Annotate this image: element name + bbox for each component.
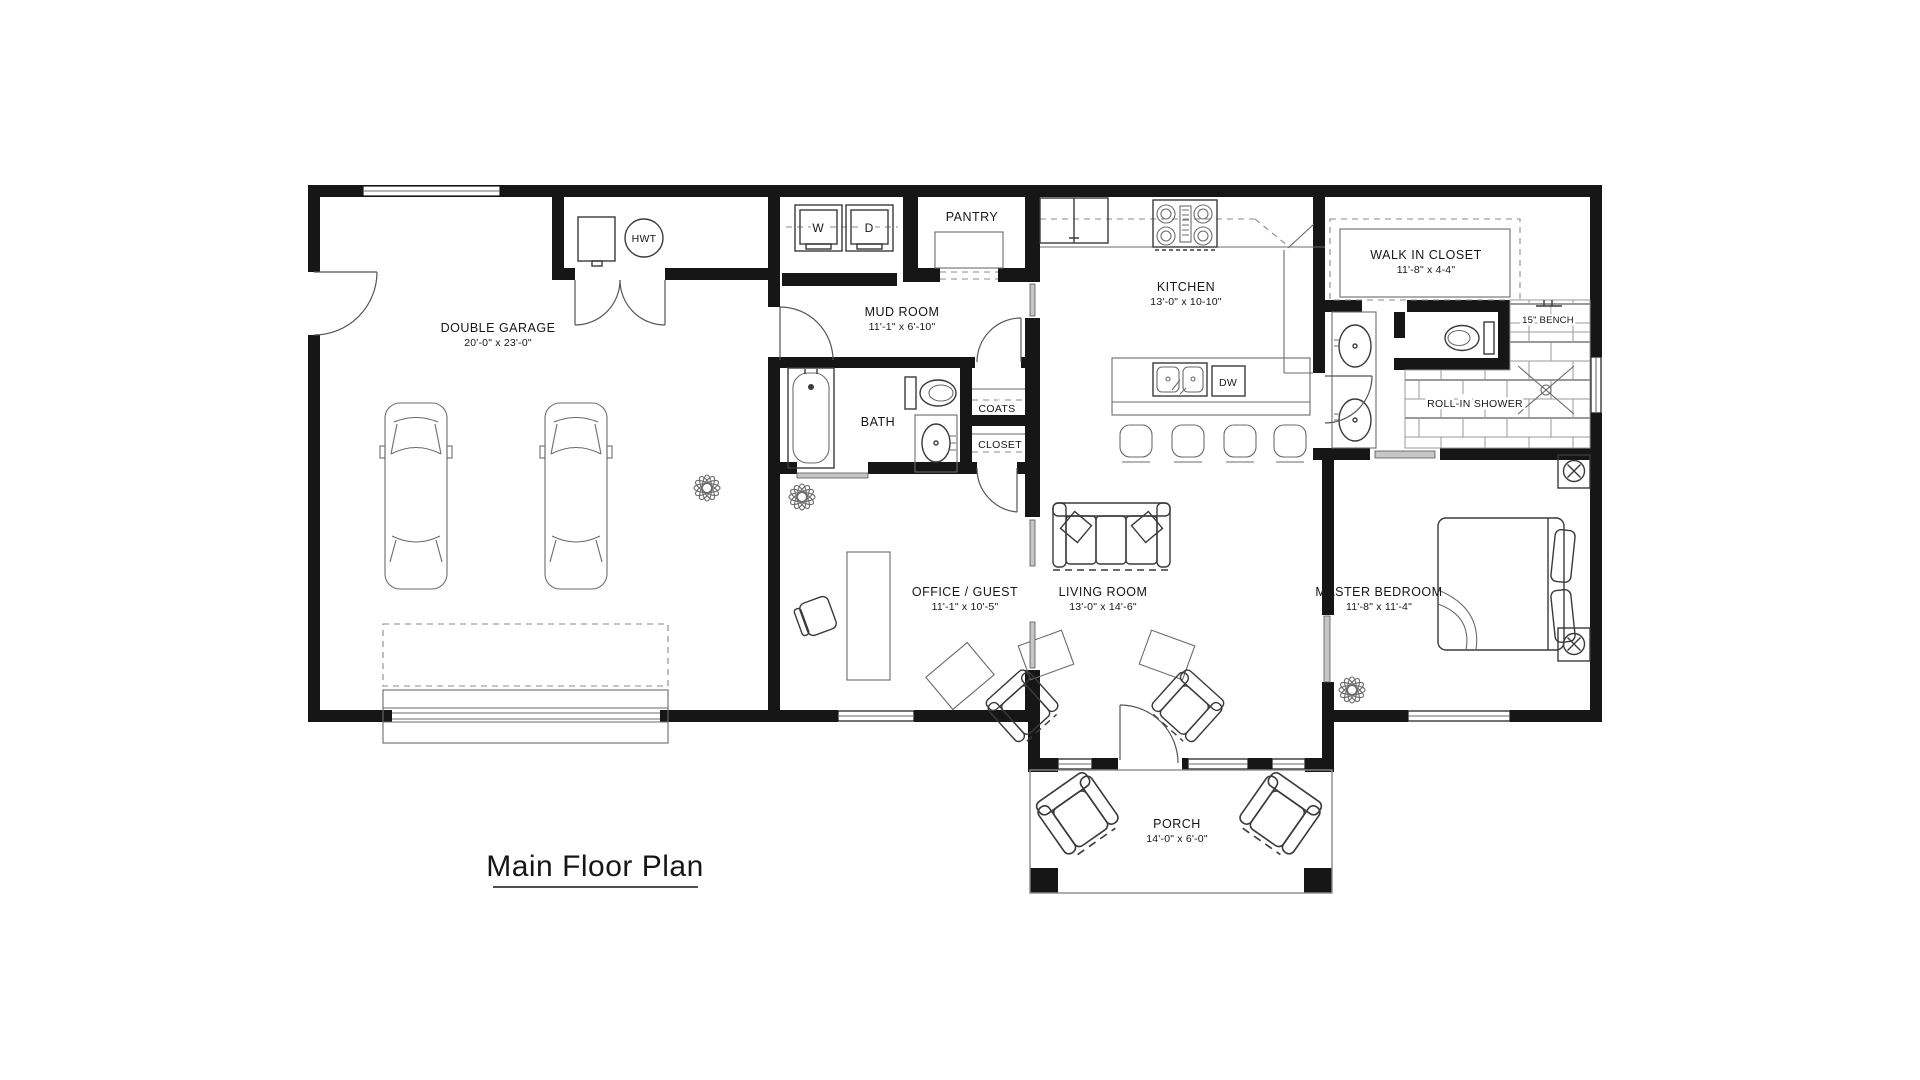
- closet-label: CLOSET: [978, 439, 1022, 451]
- garage-dims: 20'-0" x 23'-0": [464, 337, 532, 349]
- bench-label: 15" BENCH: [1522, 315, 1574, 326]
- bed-icon: [1438, 518, 1576, 650]
- master-bedroom: [1338, 455, 1590, 704]
- desk-icon: [847, 552, 890, 680]
- living-pocket-door: [1030, 520, 1035, 566]
- coats-label: COATS: [979, 403, 1016, 415]
- stool-icon: [1172, 425, 1204, 462]
- water-heater-label: HWT: [632, 233, 657, 245]
- porch-chair-icon: [1235, 769, 1325, 860]
- living-pocket-door: [1030, 622, 1035, 668]
- plant-icon: [693, 474, 720, 501]
- garage-label: DOUBLE GARAGE: [441, 321, 556, 335]
- nightstand-icon: [1558, 628, 1590, 661]
- armchair-icon: [1147, 667, 1227, 747]
- entry-door: [1120, 705, 1178, 763]
- bath-label: BATH: [861, 415, 895, 429]
- bedroom-pocket-door: [1324, 616, 1330, 682]
- dishwasher-icon: DW: [1212, 366, 1245, 396]
- bathtub-icon: [788, 368, 834, 468]
- garage-door: [383, 624, 668, 743]
- plant-icon: [1338, 676, 1365, 703]
- barn-door: [1375, 451, 1435, 458]
- pantry: PANTRY: [935, 210, 1003, 279]
- porch-label: PORCH: [1153, 817, 1201, 831]
- kitchen-label: KITCHEN: [1157, 280, 1215, 294]
- dishwasher-label: DW: [1219, 377, 1237, 389]
- garage-window: [363, 186, 500, 196]
- office-chair-icon: [792, 595, 837, 639]
- utility-double-door: [575, 280, 665, 325]
- drawing-title: Main Floor Plan: [486, 850, 704, 887]
- kitchen-island: DW: [1112, 358, 1310, 415]
- hall-closet-door: [977, 468, 1017, 512]
- dryer-label: D: [865, 221, 874, 235]
- office-rug-icon: [926, 643, 994, 710]
- toilet-icon: [905, 377, 956, 409]
- sofa-icon: [1053, 503, 1170, 570]
- stool-icon: [1224, 425, 1256, 462]
- porch-dims: 14'-0" x 6'-0": [1146, 833, 1208, 845]
- master-bedroom-dims: 11'-8" x 11'-4": [1346, 601, 1412, 613]
- roll-in-shower: 15" BENCH ROLL-IN SHOWER: [1405, 300, 1590, 448]
- car-icon: [380, 403, 452, 589]
- shower-label: ROLL-IN SHOWER: [1427, 398, 1523, 410]
- stool-icon: [1274, 425, 1306, 462]
- car-icon: [540, 403, 612, 589]
- kitchen-dims: 13'-0" x 10-10": [1150, 296, 1221, 308]
- kitchen-pocket-door: [1030, 284, 1035, 316]
- pantry-label: PANTRY: [946, 210, 999, 224]
- living-window-left: [1058, 759, 1092, 769]
- bath-pocket-door: [797, 473, 868, 478]
- walk-in-closet-dims: 11'-8" x 4-4": [1397, 264, 1456, 276]
- office-label: OFFICE / GUEST: [912, 585, 1018, 599]
- armchair-icon: [983, 667, 1063, 747]
- water-heater-icon: HWT: [625, 219, 663, 257]
- mudroom-hall-door: [977, 318, 1021, 362]
- living-room-dims: 13'-0" x 14'-6": [1069, 601, 1137, 613]
- office-dims: 11'-1" x 10'-5": [932, 601, 999, 613]
- mudroom-label: MUD ROOM: [865, 305, 940, 319]
- vanity: [1332, 312, 1376, 448]
- toilet-icon: [1445, 322, 1494, 354]
- office-window: [838, 711, 914, 721]
- garage: HWT: [380, 217, 721, 743]
- laundry: W D: [786, 205, 898, 251]
- floor-plan-svg: HWT W D PANTRY: [0, 0, 1920, 1080]
- living-window-right: [1272, 759, 1305, 769]
- floor-plan-page: HWT W D PANTRY: [0, 0, 1920, 1080]
- porch: [1030, 769, 1332, 893]
- garage-side-door: [314, 272, 377, 335]
- kitchen-sink-icon: [1153, 363, 1207, 396]
- garage-mudroom-door: [780, 307, 833, 360]
- rug-icon: [1139, 630, 1195, 680]
- kitchen: DW: [1040, 198, 1325, 462]
- walls: [308, 185, 1602, 893]
- master-bedroom-label: MASTER BEDROOM: [1315, 585, 1442, 599]
- furnace-icon: [578, 217, 615, 266]
- plant-icon: [788, 483, 815, 510]
- porch-chair-icon: [1032, 769, 1122, 860]
- mudroom-dims: 11'-1" x 6'-10": [869, 321, 936, 333]
- living-window-mid: [1188, 759, 1248, 769]
- shower-window: [1591, 357, 1601, 413]
- bedroom-window: [1408, 711, 1510, 721]
- page-title: Main Floor Plan: [486, 850, 704, 883]
- stool-icon: [1120, 425, 1152, 462]
- stove-icon: [1153, 200, 1217, 250]
- living-room-label: LIVING ROOM: [1059, 585, 1148, 599]
- fridge-icon: [1040, 198, 1108, 243]
- walk-in-closet-label: WALK IN CLOSET: [1370, 248, 1481, 262]
- washer-label: W: [812, 221, 824, 235]
- master-bath: 15" BENCH ROLL-IN SHOWER: [1332, 300, 1590, 458]
